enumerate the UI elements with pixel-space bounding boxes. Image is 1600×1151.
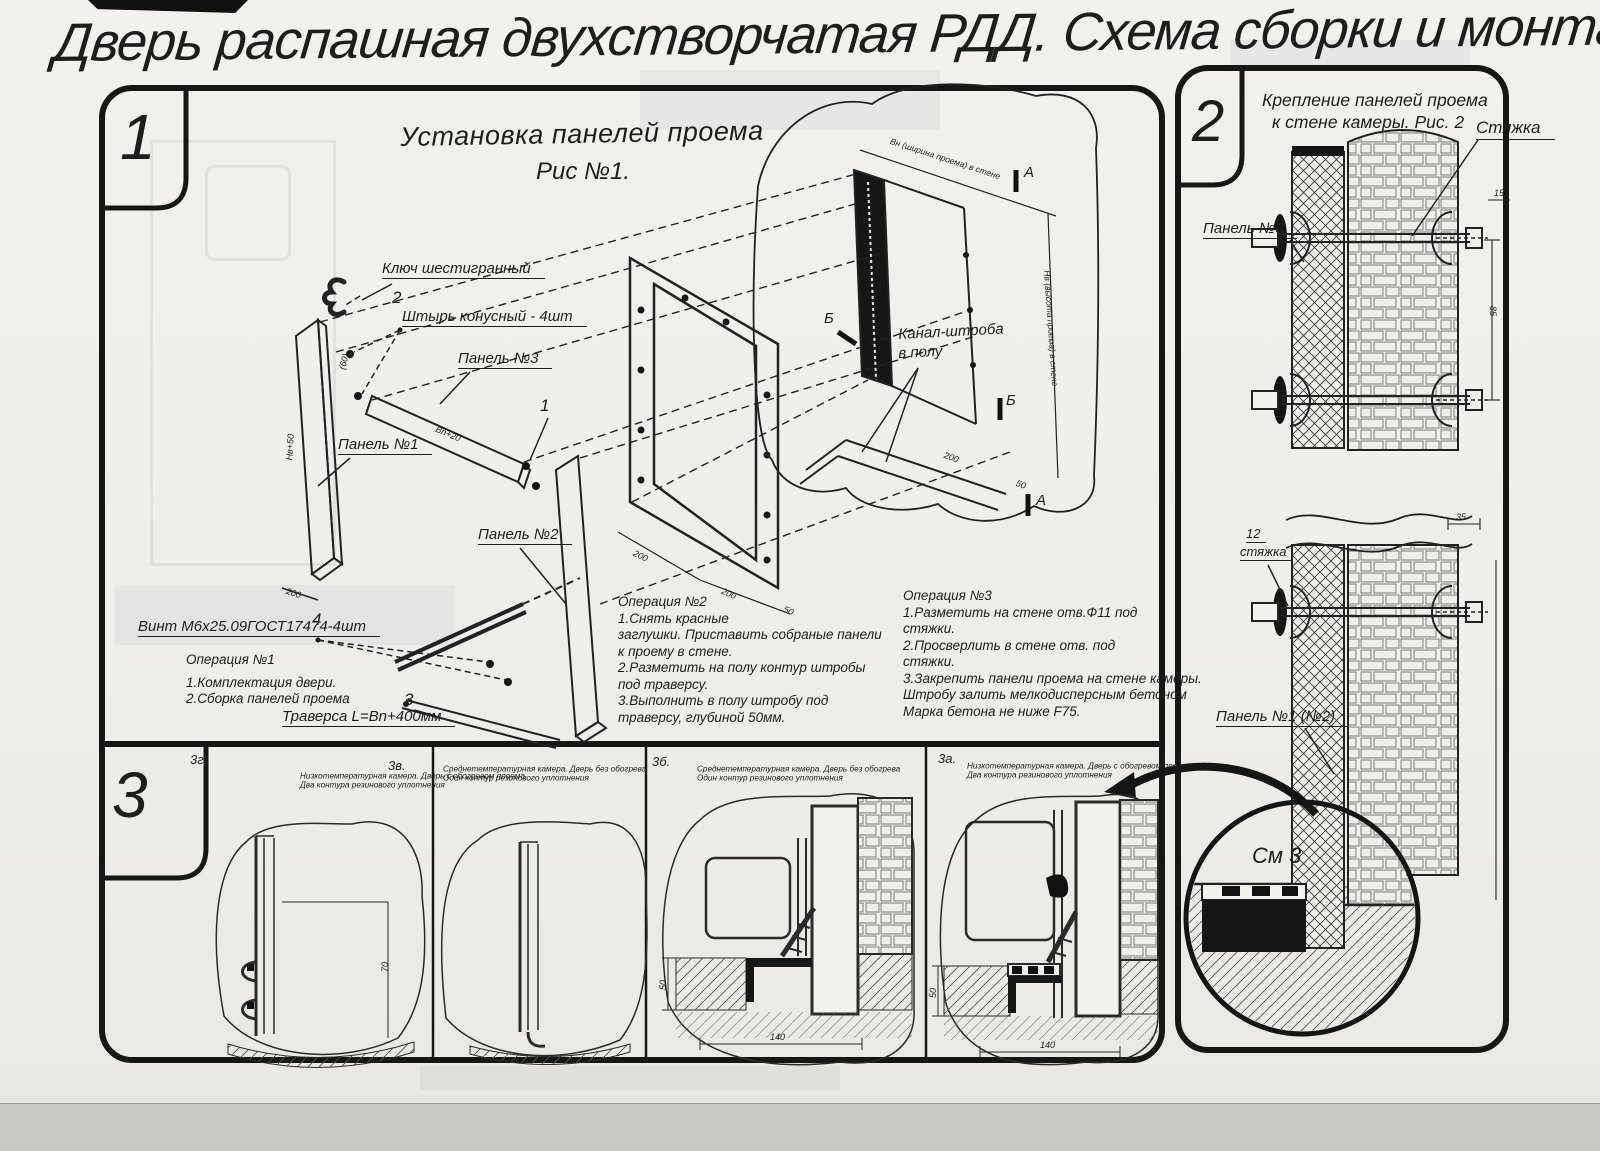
detail-3a-drawing	[932, 794, 1158, 1064]
see-detail-3-label: См 3	[1252, 843, 1301, 869]
detail-3g-drawing	[216, 822, 424, 1068]
section1-figure-ref: Рис №1.	[536, 158, 630, 186]
operation-1-title: Операция №1	[186, 652, 350, 669]
callout-hex-key: Ключ шестигранный	[382, 260, 545, 279]
section2-heading-line2: к стене камеры. Рис. 2	[1272, 112, 1464, 133]
operation-3-line: 1.Разметить на стене отв.Ф11 под	[903, 605, 1202, 622]
operation-2-block: Операция №2 1.Снять красные заглушки. Пр…	[618, 594, 882, 726]
operation-2-line: траверсу, глубиной 50мм.	[618, 710, 882, 727]
dim-3a-140: 140	[1040, 1040, 1055, 1050]
section1-heading: Установка панелей проема	[400, 116, 764, 153]
detail-3b-caption: Среднетемпературная камера. Дверь без об…	[697, 765, 900, 783]
operation-3-line: Штробу залить мелкодисперсным бетоном	[903, 687, 1202, 704]
callout-pin-number: 2	[392, 288, 401, 308]
dim-panel-height: Нв+50	[284, 434, 296, 461]
callout-tie-number: 12	[1246, 526, 1266, 543]
detail-3v-drawing	[442, 822, 647, 1065]
dim-35: 35	[1456, 512, 1466, 522]
callout-traverse-number: 3	[404, 690, 413, 710]
callout-panel1: Панель №1	[338, 436, 432, 455]
operation-3-line: 2.Просверлить в стене отв. под	[903, 638, 1202, 655]
scanned-drawing-sheet: Дверь распашная двухстворчатая РДД. Схем…	[0, 0, 1600, 1151]
caption-line: Один контур резинового уплотнения	[697, 774, 900, 783]
dim-3a-50: 50	[928, 988, 938, 998]
operation-1-block: Операция №1 1.Комплектация двери. 2.Сбор…	[186, 652, 350, 708]
callout-panel3-s2: Панель №3	[1203, 220, 1297, 239]
callout-floor-channel-2: в полу	[898, 343, 943, 362]
section2-badge: 2	[1192, 88, 1224, 155]
operation-3-title: Операция №3	[903, 588, 1202, 605]
section-marker-a-bottom: А	[1036, 492, 1046, 509]
caption-line: Среднетемпературная камера. Дверь без об…	[443, 765, 646, 774]
callout-panel2: Панель №2	[478, 526, 572, 545]
operation-3-line: стяжки.	[903, 621, 1202, 638]
dim-3b-50: 50	[658, 980, 668, 990]
operation-2-title: Операция №2	[618, 594, 882, 611]
section-marker-b-left: Б	[824, 310, 834, 327]
callout-screw: Винт М6х25.09ГОСТ17474-4шт	[138, 618, 380, 637]
operation-2-line: 3.Выполнить в полу штробу под	[618, 693, 882, 710]
callout-traverse: Траверса L=Bn+400мм	[282, 708, 455, 727]
operation-2-line: заглушки. Приставить собраные панели	[618, 627, 882, 644]
caption-line: Два контура резинового уплотнения	[967, 771, 1228, 780]
detail-3v-label: 3в.	[388, 758, 406, 773]
detail-3a-caption: Низкотемпературная камера. Дверь с обогр…	[967, 762, 1228, 780]
section1-badge: 1	[120, 100, 156, 174]
wall-fixing-drawing	[1252, 130, 1510, 917]
callout-panel3: Панель №3	[458, 350, 552, 369]
drawing-linework	[0, 0, 1600, 1151]
detail-3b-label: 3б.	[652, 754, 670, 769]
caption-line: Один контур резинового уплотнения	[443, 774, 646, 783]
operation-1-line: 2.Сборка панелей проема	[186, 691, 350, 708]
detail-3a-label: 3а.	[938, 751, 956, 766]
section3-badge: 3	[112, 758, 148, 832]
caption-line: Среднетемпературная камера. Дверь без об…	[697, 765, 900, 774]
operation-3-block: Операция №3 1.Разметить на стене отв.Ф11…	[903, 588, 1202, 720]
operation-2-line: 2.Разметить на полу контур штробы	[618, 660, 882, 677]
callout-item1-number: 1	[540, 396, 549, 416]
dim-85: 85	[1488, 306, 1498, 316]
dim-3b-140: 140	[770, 1032, 785, 1042]
callout-pin: Штырь конусный - 4шт	[402, 308, 587, 327]
section-marker-b-right: Б	[1006, 392, 1016, 409]
caption-line: Низкотемпературная камера. Дверь с обогр…	[967, 762, 1228, 771]
operation-2-line: к проему в стене.	[618, 644, 882, 661]
operation-2-line: 1.Снять красные	[618, 611, 882, 628]
detail-3b-drawing	[662, 794, 914, 1065]
section-marker-a-top: А	[1024, 164, 1034, 181]
operation-2-line: под траверсу.	[618, 677, 882, 694]
operation-1-line: 1.Комплектация двери.	[186, 675, 350, 692]
callout-tie-word: стяжка	[1240, 544, 1292, 561]
detail-3v-caption: Среднетемпературная камера. Дверь без об…	[443, 765, 646, 783]
callout-panel12: Панель №1 (№2)	[1216, 708, 1349, 727]
operation-3-line: стяжки.	[903, 654, 1202, 671]
section2-heading-line1: Крепление панелей проема	[1262, 90, 1488, 111]
callout-tie: Стяжка	[1476, 118, 1555, 140]
detail-3g-label: 3г.	[190, 752, 207, 767]
operation-3-line: 3.Закрепить панели проема на стене камер…	[903, 671, 1202, 688]
dim-15: 15	[1494, 188, 1504, 198]
dim-3g-70: 70	[380, 962, 390, 972]
operation-3-line: Марка бетона не ниже F75.	[903, 704, 1202, 721]
